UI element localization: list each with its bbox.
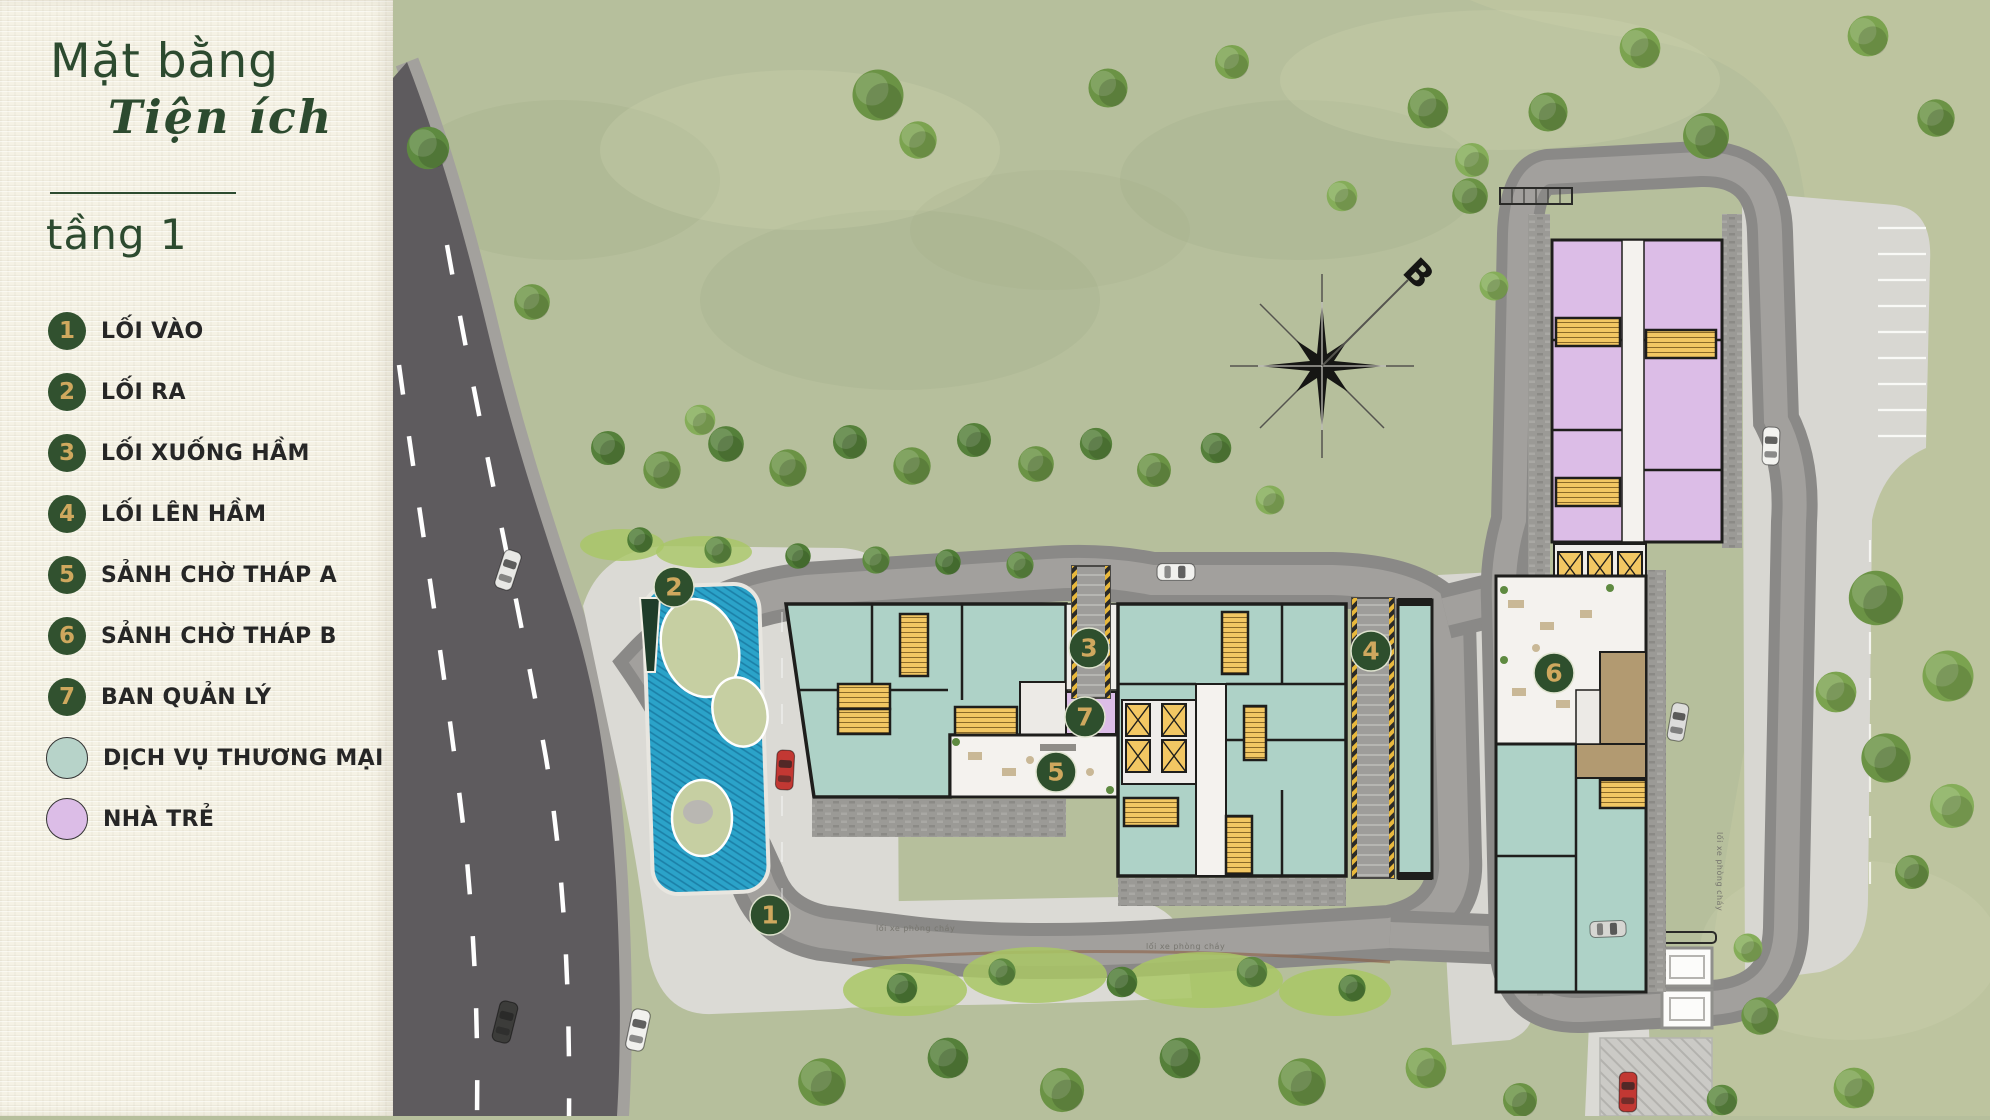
- car: [1762, 427, 1780, 465]
- map-marker-2: 2: [654, 567, 694, 607]
- legend-label-3: LỐI XUỐNG HẦM: [101, 441, 310, 466]
- fire-lane-label: lối xe phòng cháy: [1146, 941, 1225, 951]
- legend-marker-7: 7: [48, 678, 86, 716]
- elevator: [1162, 704, 1186, 736]
- legend-list: 1 LỐI VÀO 2 LỐI RA 3 LỐI XUỐNG HẦM 4 LỐI…: [48, 312, 383, 861]
- legend-label-2: LỐI RA: [101, 380, 186, 405]
- legend-item-4: 4 LỐI LÊN HẦM: [48, 495, 383, 533]
- staircase: [1600, 780, 1646, 808]
- fire-lane-label: lối xe phòng cháy: [876, 923, 955, 933]
- staircase: [838, 684, 890, 709]
- legend-item-5: 5 SẢNH CHỜ THÁP A: [48, 556, 383, 594]
- svg-text:6: 6: [1545, 659, 1562, 688]
- legend-label-7: BAN QUẢN LÝ: [101, 685, 271, 710]
- legend-label-6: SẢNH CHỜ THÁP B: [101, 624, 337, 649]
- map-marker-5: 5: [1036, 752, 1076, 792]
- legend-item-3: 3 LỐI XUỐNG HẦM: [48, 434, 383, 472]
- legend-marker-3: 3: [48, 434, 86, 472]
- map-marker-4: 4: [1351, 631, 1391, 671]
- staircase: [1222, 612, 1248, 674]
- elevator: [1162, 740, 1186, 772]
- svg-text:1: 1: [761, 901, 778, 930]
- legend-label-nursery: NHÀ TRẺ: [103, 807, 214, 832]
- legend-item-2: 2 LỐI RA: [48, 373, 383, 411]
- pond: [640, 583, 775, 895]
- staircase: [1646, 330, 1716, 358]
- staircase: [1124, 798, 1178, 826]
- nursery-swatch: [46, 798, 88, 840]
- legend-item-6: 6 SẢNH CHỜ THÁP B: [48, 617, 383, 655]
- svg-text:4: 4: [1362, 637, 1379, 666]
- map-marker-3: 3: [1069, 628, 1109, 668]
- legend-item-1: 1 LỐI VÀO: [48, 312, 383, 350]
- tower-a-lobby: [950, 735, 1118, 797]
- elevator: [1126, 704, 1150, 736]
- staircase: [1556, 318, 1620, 346]
- car: [775, 750, 795, 790]
- site-plan-svg: B lối xe phòng cháy lối xe phòng cháy lố…: [393, 0, 1990, 1116]
- legend-item-commercial: DỊCH VỤ THƯƠNG MẠI: [48, 739, 383, 777]
- legend-item-nursery: NHÀ TRẺ: [48, 800, 383, 838]
- staircase: [838, 709, 890, 734]
- site-plan-map: B lối xe phòng cháy lối xe phòng cháy lố…: [393, 0, 1990, 1116]
- svg-text:2: 2: [665, 573, 682, 602]
- staircase: [900, 614, 928, 676]
- map-marker-6: 6: [1534, 653, 1574, 693]
- elevator: [1126, 740, 1150, 772]
- car: [1619, 1072, 1637, 1112]
- legend-panel: Mặt bằng Tiện ích tầng 1 1 LỐI VÀO 2 LỐI…: [0, 0, 393, 1116]
- legend-marker-5: 5: [48, 556, 86, 594]
- car: [1590, 920, 1627, 937]
- restroom-block: [1020, 682, 1066, 735]
- svg-text:7: 7: [1076, 703, 1093, 732]
- page-subtitle-script: Tiện ích: [108, 90, 333, 144]
- svg-text:3: 3: [1080, 634, 1097, 663]
- svg-text:5: 5: [1047, 758, 1064, 787]
- legend-marker-2: 2: [48, 373, 86, 411]
- legend-marker-1: 1: [48, 312, 86, 350]
- legend-label-1: LỐI VÀO: [101, 319, 204, 344]
- fire-lane-label: lối xe phòng cháy: [1715, 832, 1725, 911]
- staircase: [1226, 816, 1252, 874]
- title-divider: [50, 192, 236, 194]
- map-marker-1: 1: [750, 895, 790, 935]
- legend-label-commercial: DỊCH VỤ THƯƠNG MẠI: [103, 746, 384, 771]
- legend-item-7: 7 BAN QUẢN LÝ: [48, 678, 383, 716]
- legend-marker-6: 6: [48, 617, 86, 655]
- staircase: [1556, 478, 1620, 506]
- commercial-strip: [1398, 600, 1432, 878]
- restroom-block: [1576, 690, 1600, 744]
- legend-label-4: LỐI LÊN HẦM: [101, 502, 266, 527]
- floor-label: tầng 1: [46, 210, 188, 259]
- legend-label-5: SẢNH CHỜ THÁP A: [101, 563, 337, 588]
- back-of-house-room: [1576, 744, 1646, 778]
- map-marker-7: 7: [1065, 697, 1105, 737]
- back-of-house-room: [1600, 652, 1646, 744]
- staircase: [955, 707, 1017, 735]
- commercial-swatch: [46, 737, 88, 779]
- site-plan-page: Mặt bằng Tiện ích tầng 1 1 LỐI VÀO 2 LỐI…: [0, 0, 1990, 1116]
- page-title: Mặt bằng: [50, 34, 279, 89]
- legend-marker-4: 4: [48, 495, 86, 533]
- car: [1157, 564, 1195, 581]
- staircase: [1244, 706, 1266, 760]
